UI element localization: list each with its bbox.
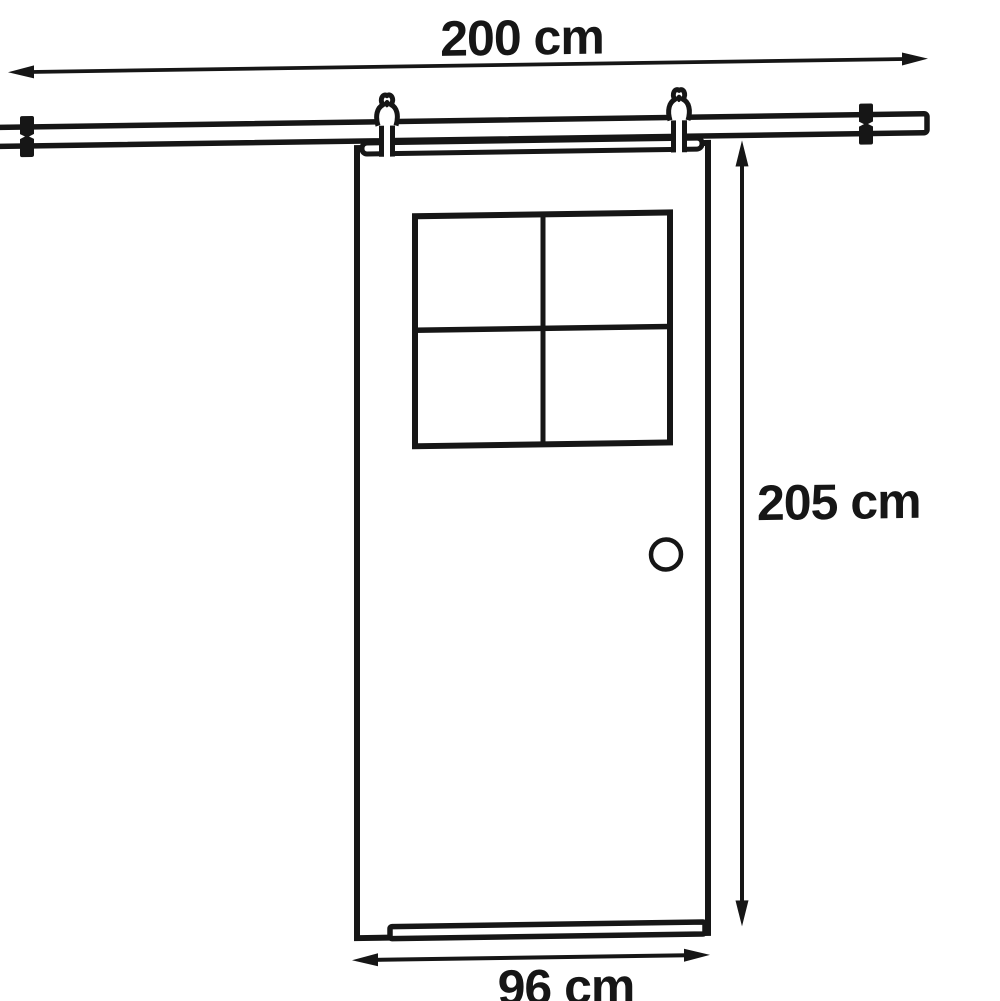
- door-bottom-edge: [390, 922, 705, 939]
- dim-label-door-width: 96 cm: [498, 961, 635, 1001]
- arrowhead-up-icon: [736, 140, 749, 166]
- arrowhead-right-icon: [684, 948, 710, 961]
- door-handle-icon: [651, 539, 681, 569]
- dim-label-door-height: 205 cm: [757, 476, 921, 528]
- arrowhead-down-icon: [736, 900, 749, 926]
- arrowhead-left-icon: [352, 953, 378, 966]
- dim-arrow-door-height: [736, 140, 749, 926]
- roller-hanger-left-icon: [377, 95, 398, 159]
- door-window: [415, 212, 670, 446]
- dim-label-track-width: 200 cm: [440, 11, 604, 63]
- roller-hanger-right-icon: [669, 89, 690, 154]
- diagram-canvas: 200 cm 205 cm 96 cm: [0, 0, 1000, 1001]
- arrowhead-right-icon: [902, 52, 928, 65]
- track-bracket-left-icon: [13, 116, 41, 157]
- track-bracket-right-icon: [852, 103, 880, 144]
- door-top-edge: [362, 138, 702, 154]
- sliding-door-diagram: 200 cm 205 cm 96 cm: [0, 0, 1000, 1001]
- arrowhead-left-icon: [8, 65, 34, 78]
